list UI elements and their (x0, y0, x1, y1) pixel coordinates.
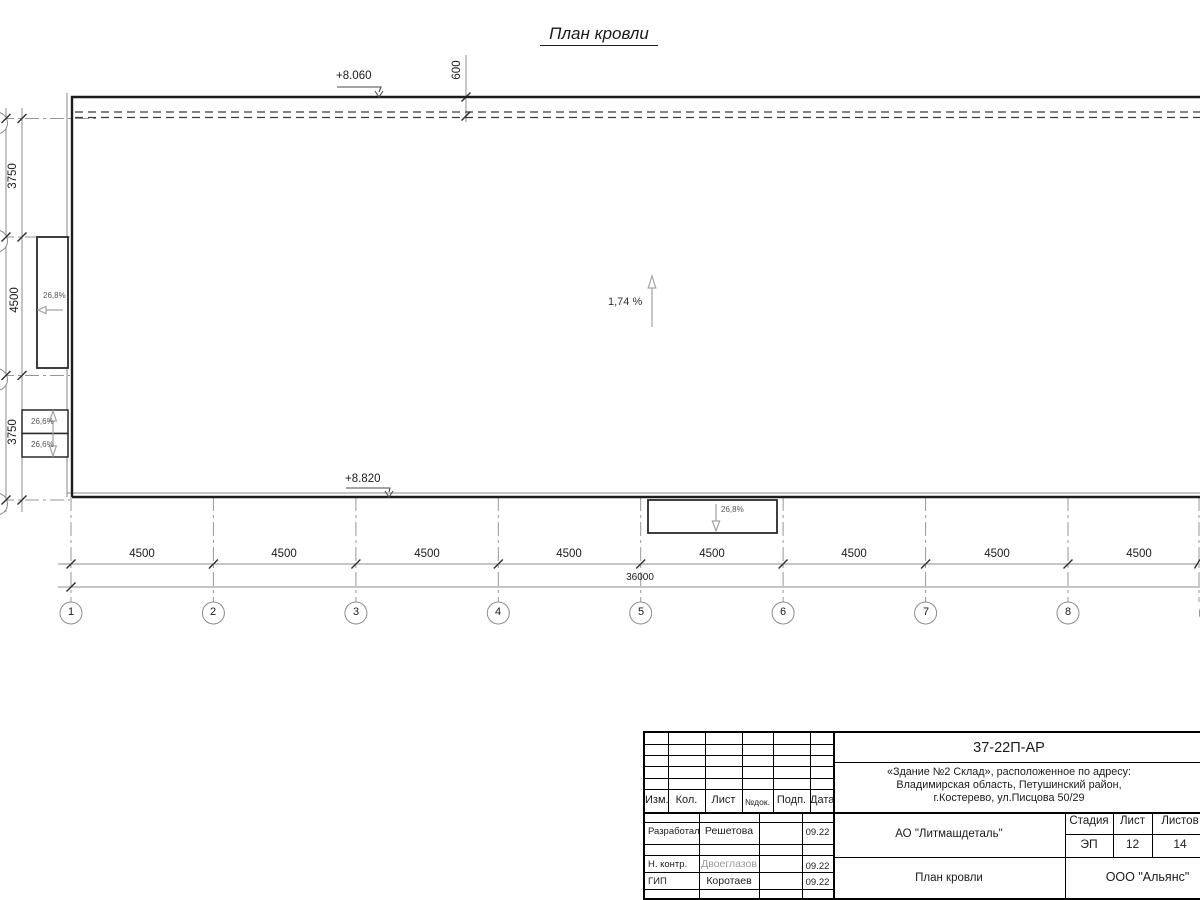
elevation-top-label: +8.060 (336, 70, 372, 82)
total-dim: 36000 (610, 572, 670, 583)
tb-sheet-value: 12 (1113, 837, 1152, 851)
axis-bubble-3: 3 (346, 606, 366, 618)
tb-date-gip: 09.22 (802, 877, 833, 888)
elevation-leaders (337, 87, 393, 497)
tb-name-developer: Решетова (699, 825, 759, 837)
tb-sheet-title: План кровли (833, 872, 1065, 884)
tb-header-list: Лист (705, 794, 742, 806)
bay-dim: 4500 (967, 548, 1027, 560)
tb-header-data: Дата (810, 794, 833, 806)
tb-doc-number: 37-22П-АР (833, 740, 1185, 756)
left-dim-2: 4500 (9, 278, 21, 322)
tb-sheet-label: Лист (1113, 815, 1152, 827)
small-canopy-slope-bottom: 26,6% (31, 440, 54, 449)
tb-name-gip: Коротаев (699, 875, 759, 887)
tb-role-developer: Разработал (648, 826, 700, 837)
axis-bubble-1: 1 (61, 606, 81, 618)
left-dim-3: 3750 (7, 410, 19, 454)
tb-address: «Здание №2 Склад», расположенное по адре… (833, 766, 1185, 805)
tb-address-line1: «Здание №2 Склад», расположенное по адре… (833, 766, 1185, 779)
axis-bubble-5: 5 (631, 606, 651, 618)
tb-sheets-label: Листов (1152, 815, 1200, 827)
bay-dim: 4500 (824, 548, 884, 560)
tb-stage-label: Стадия (1065, 815, 1113, 827)
tb-stage-value: ЭП (1065, 837, 1113, 851)
canopy-outlines (22, 237, 777, 533)
bay-dim: 4500 (254, 548, 314, 560)
bay-dim: 4500 (539, 548, 599, 560)
axis-bubble-7: 7 (916, 606, 936, 618)
axis-bubble-8: 8 (1058, 606, 1078, 618)
tb-customer: АО "Литмашдеталь" (833, 828, 1065, 840)
tb-address-line3: г.Костерево, ул.Писцова 50/29 (833, 792, 1185, 805)
bay-dim: 4500 (682, 548, 742, 560)
building-outline (67, 93, 1200, 497)
tb-role-ncontrol: Н. контр. (648, 859, 700, 870)
main-slope-label: 1,74 % (608, 296, 642, 308)
drawing-title: План кровли (540, 24, 658, 46)
tb-header-podp: Подп. (773, 794, 810, 806)
dimension-ticks (2, 93, 1200, 592)
left-dim-1: 3750 (7, 154, 19, 198)
title-block: Изм. Кол. Лист №док. Подп. Дата Разработ… (643, 731, 1200, 900)
tb-header-ndok: №док. (742, 797, 773, 807)
left-total-dim: 12000 (0, 278, 2, 322)
roof-plan-sheet: { "title": "План кровли", "drawing": { "… (0, 0, 1200, 900)
tb-date-ncontrol: 09.22 (802, 861, 833, 872)
parapet-offset-dim: 600 (451, 50, 463, 90)
bay-dim: 4500 (397, 548, 457, 560)
tb-org: ООО "Альянс" (1065, 870, 1200, 884)
small-canopy-slope-top: 26,6% (31, 417, 54, 426)
bottom-canopy-slope-label: 26,8% (721, 505, 744, 514)
left-canopy-slope-label: 26,8% (43, 291, 66, 300)
tb-date-developer: 09.22 (802, 827, 833, 838)
bay-dim: 4500 (112, 548, 172, 560)
dimension-lines (6, 55, 1200, 587)
axis-bubble-4: 4 (488, 606, 508, 618)
elevation-bottom-label: +8.820 (345, 473, 381, 485)
axis-bubble-6: 6 (773, 606, 793, 618)
tb-address-line2: Владимирская область, Петушинский район, (833, 779, 1185, 792)
column-axis-lines (71, 497, 1199, 602)
bay-dim: 4500 (1109, 548, 1169, 560)
axis-bubble-2: 2 (203, 606, 223, 618)
tb-role-gip: ГИП (648, 876, 700, 887)
tb-sheets-value: 14 (1152, 837, 1200, 851)
tb-header-izm: Изм. (645, 794, 668, 806)
tb-header-kol: Кол. (668, 794, 705, 806)
tb-name-ncontrol: Двоеглазов (699, 858, 759, 870)
